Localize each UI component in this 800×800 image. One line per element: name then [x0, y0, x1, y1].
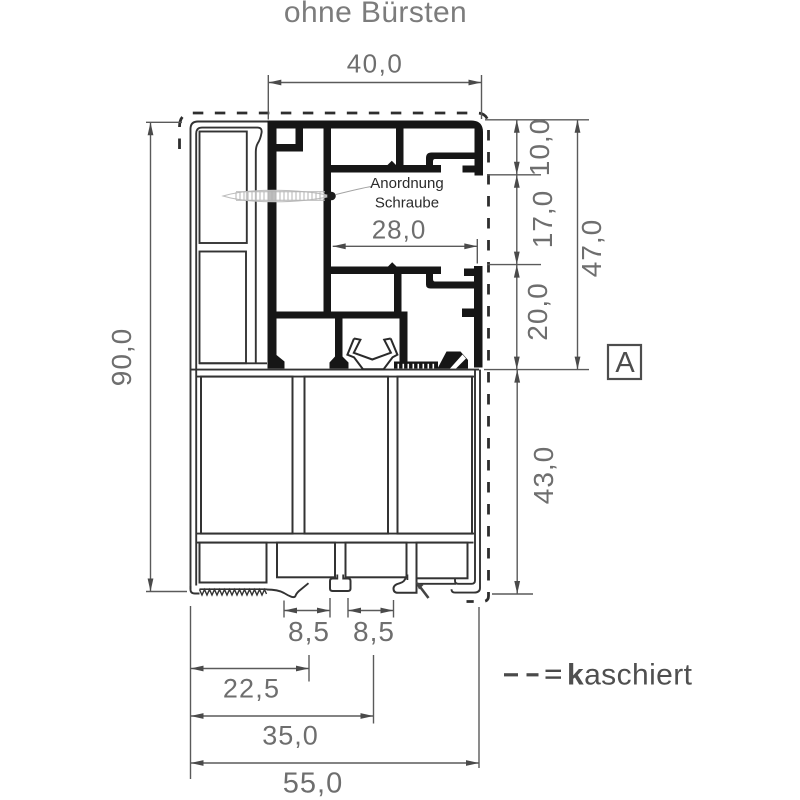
svg-text:A: A	[615, 347, 635, 379]
svg-text:Schraube: Schraube	[375, 195, 439, 212]
svg-text:17,0: 17,0	[527, 190, 558, 249]
svg-text:28,0: 28,0	[372, 215, 427, 245]
svg-text:35,0: 35,0	[262, 721, 319, 751]
svg-text:90,0: 90,0	[106, 328, 137, 387]
svg-text:22,5: 22,5	[223, 674, 280, 704]
svg-text:55,0: 55,0	[283, 768, 343, 800]
svg-text:ohne Bürsten: ohne Bürsten	[284, 0, 467, 29]
svg-text:kaschiert: kaschiert	[567, 659, 693, 692]
svg-text:47,0: 47,0	[576, 219, 607, 278]
svg-text:20,0: 20,0	[522, 282, 553, 341]
svg-text:43,0: 43,0	[528, 446, 559, 505]
svg-text:8,5: 8,5	[353, 616, 395, 647]
svg-text:40,0: 40,0	[347, 49, 404, 79]
svg-text:10,0: 10,0	[524, 118, 555, 177]
svg-text:Anordnung: Anordnung	[370, 175, 443, 192]
svg-text:8,5: 8,5	[288, 616, 330, 647]
